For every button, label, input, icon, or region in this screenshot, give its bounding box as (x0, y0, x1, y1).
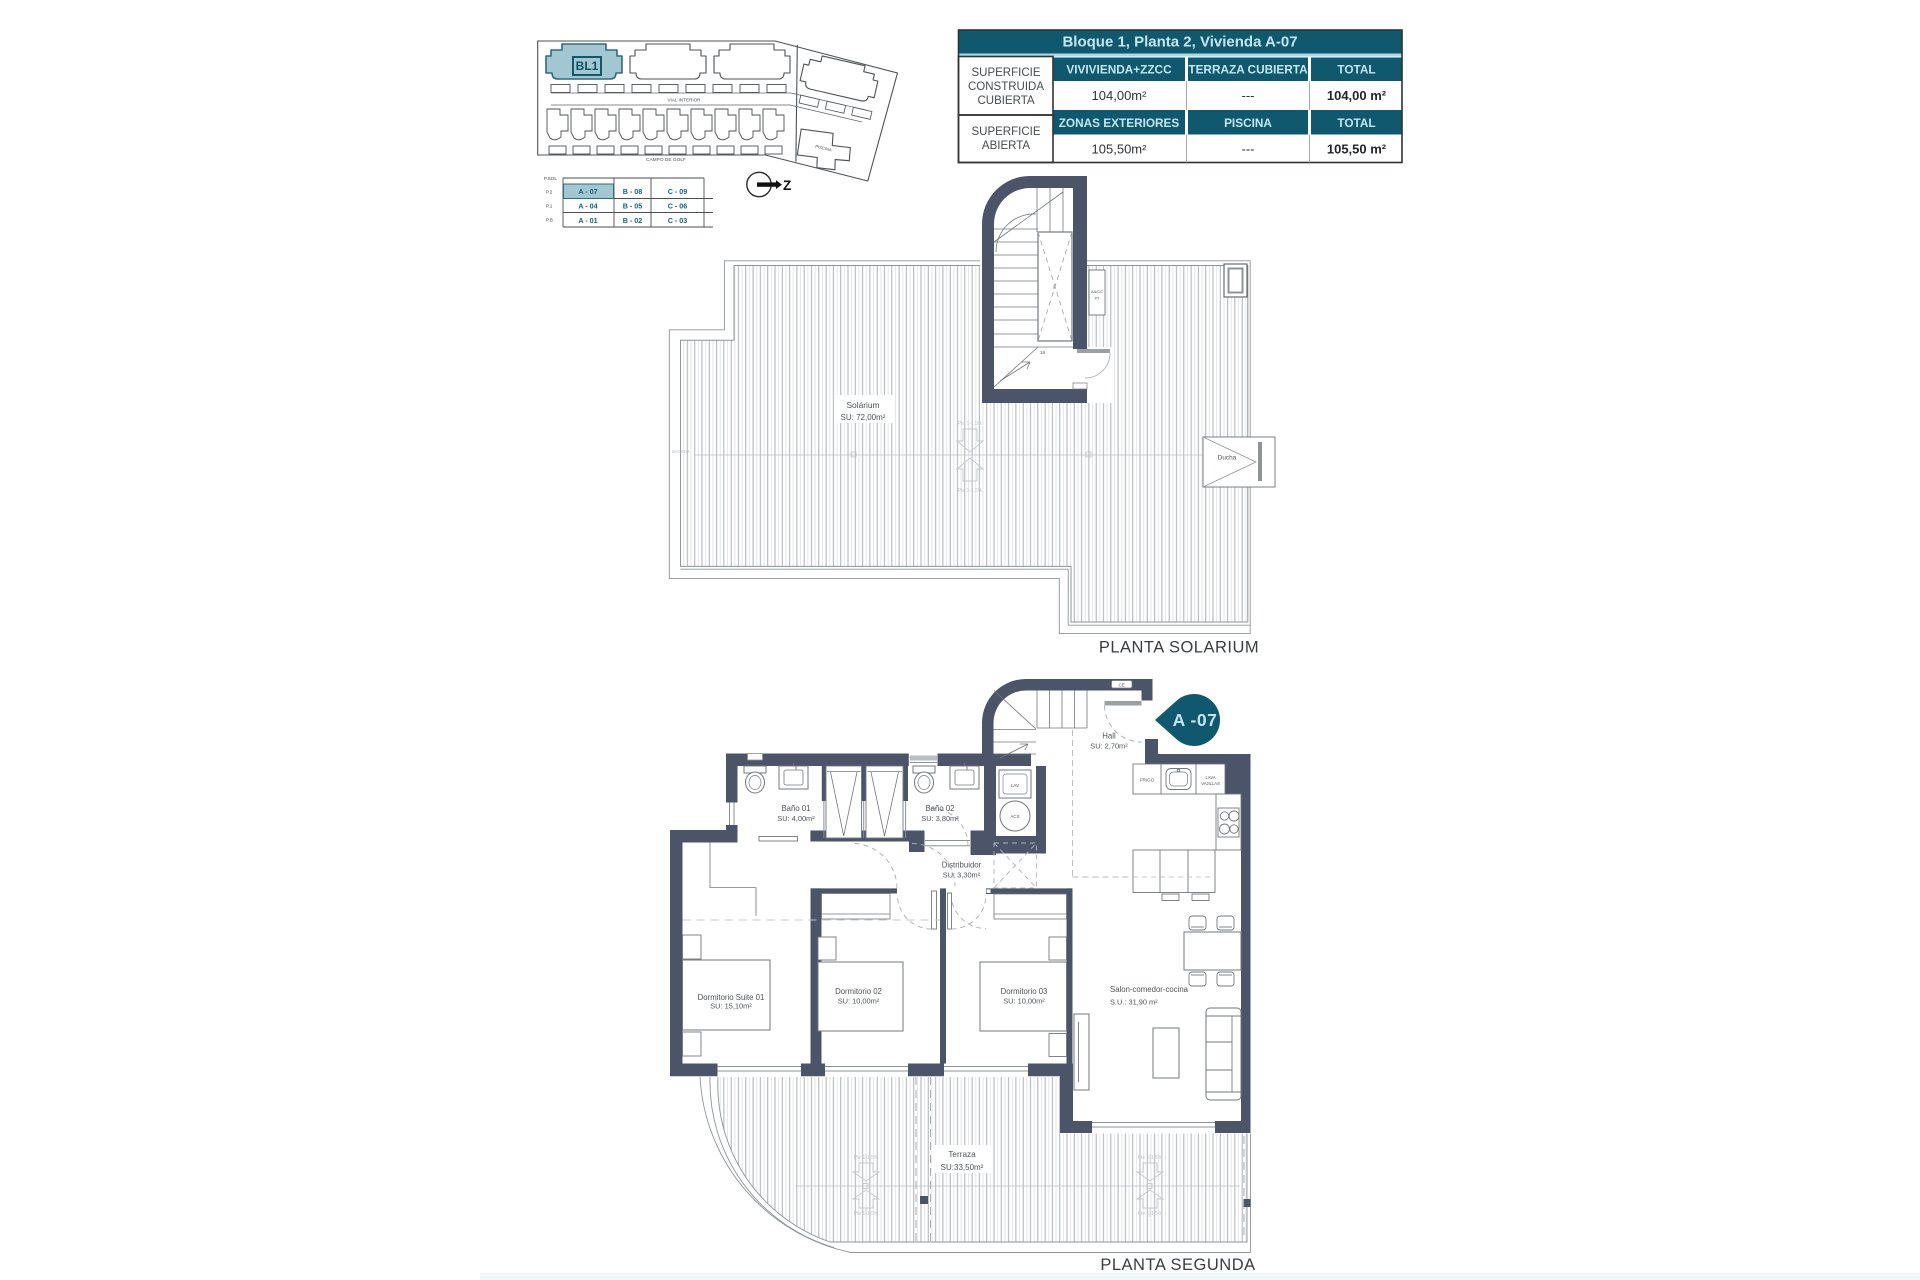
svg-text:A - 04: A - 04 (578, 202, 597, 211)
svg-text:P2: P2 (1095, 296, 1100, 301)
svg-text:CAMPO DE GOLF: CAMPO DE GOLF (646, 157, 686, 163)
svg-text:Baño 01: Baño 01 (781, 804, 810, 813)
svg-text:Pte 1-1.5%: Pte 1-1.5% (958, 488, 983, 494)
svg-text:Distribuidor: Distribuidor (942, 861, 982, 870)
svg-text:105,50 m²: 105,50 m² (1327, 142, 1387, 157)
svg-text:B - 02: B - 02 (623, 216, 643, 225)
svg-text:Pte 1-1.5%: Pte 1-1.5% (958, 421, 983, 427)
svg-text:Pte 1-1.5%: Pte 1-1.5% (1138, 1155, 1163, 1161)
svg-text:SU: 10,00m²: SU: 10,00m² (838, 997, 880, 1006)
svg-text:SUPERFICIE: SUPERFICIE (971, 67, 1040, 79)
svg-text:x: x (1053, 285, 1056, 291)
svg-text:TOTAL: TOTAL (1337, 116, 1375, 130)
svg-text:---: --- (1242, 142, 1255, 157)
svg-text:B - 08: B - 08 (623, 187, 643, 196)
svg-text:ACS: ACS (1010, 814, 1019, 819)
svg-text:Pte 1-1.5%: Pte 1-1.5% (854, 1155, 879, 1161)
svg-text:C - 03: C - 03 (668, 216, 688, 225)
svg-text:104,00 m²: 104,00 m² (1327, 88, 1387, 103)
svg-text:P.B: P.B (546, 218, 553, 223)
svg-text:P.1: P.1 (546, 204, 553, 209)
svg-text:B - 05: B - 05 (623, 202, 643, 211)
svg-text:---: --- (1242, 88, 1255, 103)
svg-text:Baño 02: Baño 02 (925, 804, 954, 813)
svg-text:MADERA: MADERA (672, 449, 690, 454)
svg-text:C - 09: C - 09 (668, 187, 688, 196)
svg-text:SU: 3,80m²: SU: 3,80m² (921, 814, 959, 823)
svg-text:BL1: BL1 (576, 59, 599, 73)
svg-text:PLANTA SOLARIUM: PLANTA SOLARIUM (1099, 639, 1259, 657)
svg-text:Z: Z (783, 178, 791, 193)
svg-text:A - 01: A - 01 (578, 216, 597, 225)
svg-text:SU: 15,10m²: SU: 15,10m² (710, 1002, 752, 1011)
svg-text:ZONAS EXTERIORES: ZONAS EXTERIORES (1059, 116, 1180, 130)
svg-text:VAJILLAS: VAJILLAS (1201, 781, 1220, 786)
svg-text:Terraza: Terraza (948, 1150, 976, 1159)
svg-text:PISCINA: PISCINA (1224, 116, 1272, 130)
svg-text:A -07: A -07 (1173, 710, 1218, 730)
svg-text:LAVA: LAVA (1205, 775, 1215, 780)
svg-text:SU:33,50m²: SU:33,50m² (941, 1163, 984, 1172)
svg-text:P.2: P.2 (546, 190, 553, 195)
svg-text:AA/CC: AA/CC (1091, 289, 1103, 294)
svg-text:SU: 4,00m²: SU: 4,00m² (777, 814, 815, 823)
svg-text:FRIGO: FRIGO (1140, 778, 1155, 783)
svg-text:104,00m²: 104,00m² (1092, 88, 1148, 103)
svg-text:SUPERFICIE: SUPERFICIE (971, 126, 1040, 138)
svg-text:Bloque 1, Planta 2, Vivienda A: Bloque 1, Planta 2, Vivienda A-07 (1062, 34, 1297, 51)
svg-text:Pte 1-1.5%: Pte 1-1.5% (854, 1211, 879, 1217)
svg-text:Dormitorio 02: Dormitorio 02 (835, 987, 882, 996)
svg-text:Solárium: Solárium (846, 400, 879, 410)
svg-text:LAV: LAV (1011, 783, 1020, 788)
svg-text:CONSTRUIDA: CONSTRUIDA (968, 81, 1044, 93)
svg-text:Dormitorio 03: Dormitorio 03 (1001, 987, 1048, 996)
svg-text:CE: CE (1119, 682, 1125, 687)
svg-text:SU: 3,30m²: SU: 3,30m² (943, 871, 981, 880)
svg-text:Salon-comedor-cocina: Salon-comedor-cocina (1110, 985, 1189, 994)
svg-text:CUBIERTA: CUBIERTA (977, 95, 1034, 107)
svg-text:18: 18 (1040, 350, 1046, 355)
svg-text:P.SOL: P.SOL (544, 176, 557, 181)
svg-text:Pte 1-1.5%: Pte 1-1.5% (1138, 1211, 1163, 1217)
svg-text:A - 07: A - 07 (578, 187, 597, 196)
svg-text:SU: 72,00m²: SU: 72,00m² (841, 413, 886, 422)
svg-text:ABIERTA: ABIERTA (982, 140, 1030, 152)
svg-text:Ducha: Ducha (1218, 455, 1237, 462)
svg-text:C - 06: C - 06 (668, 202, 688, 211)
svg-text:SU: 10,00m²: SU: 10,00m² (1003, 997, 1045, 1006)
svg-text:PLANTA SEGUNDA: PLANTA SEGUNDA (1100, 1256, 1255, 1274)
svg-text:Hall: Hall (1102, 732, 1116, 741)
svg-text:TERRAZA CUBIERTA: TERRAZA CUBIERTA (1188, 63, 1308, 77)
svg-text:S.U.: 31,90 m²: S.U.: 31,90 m² (1110, 998, 1158, 1007)
svg-text:105,50m²: 105,50m² (1092, 142, 1148, 157)
svg-text:VIAL INTERIOR: VIAL INTERIOR (667, 98, 701, 103)
svg-text:SU: 2,70m²: SU: 2,70m² (1090, 742, 1128, 751)
svg-text:TOTAL: TOTAL (1337, 63, 1375, 77)
svg-text:VIVIVIENDA+ZZCC: VIVIVIENDA+ZZCC (1066, 63, 1172, 77)
